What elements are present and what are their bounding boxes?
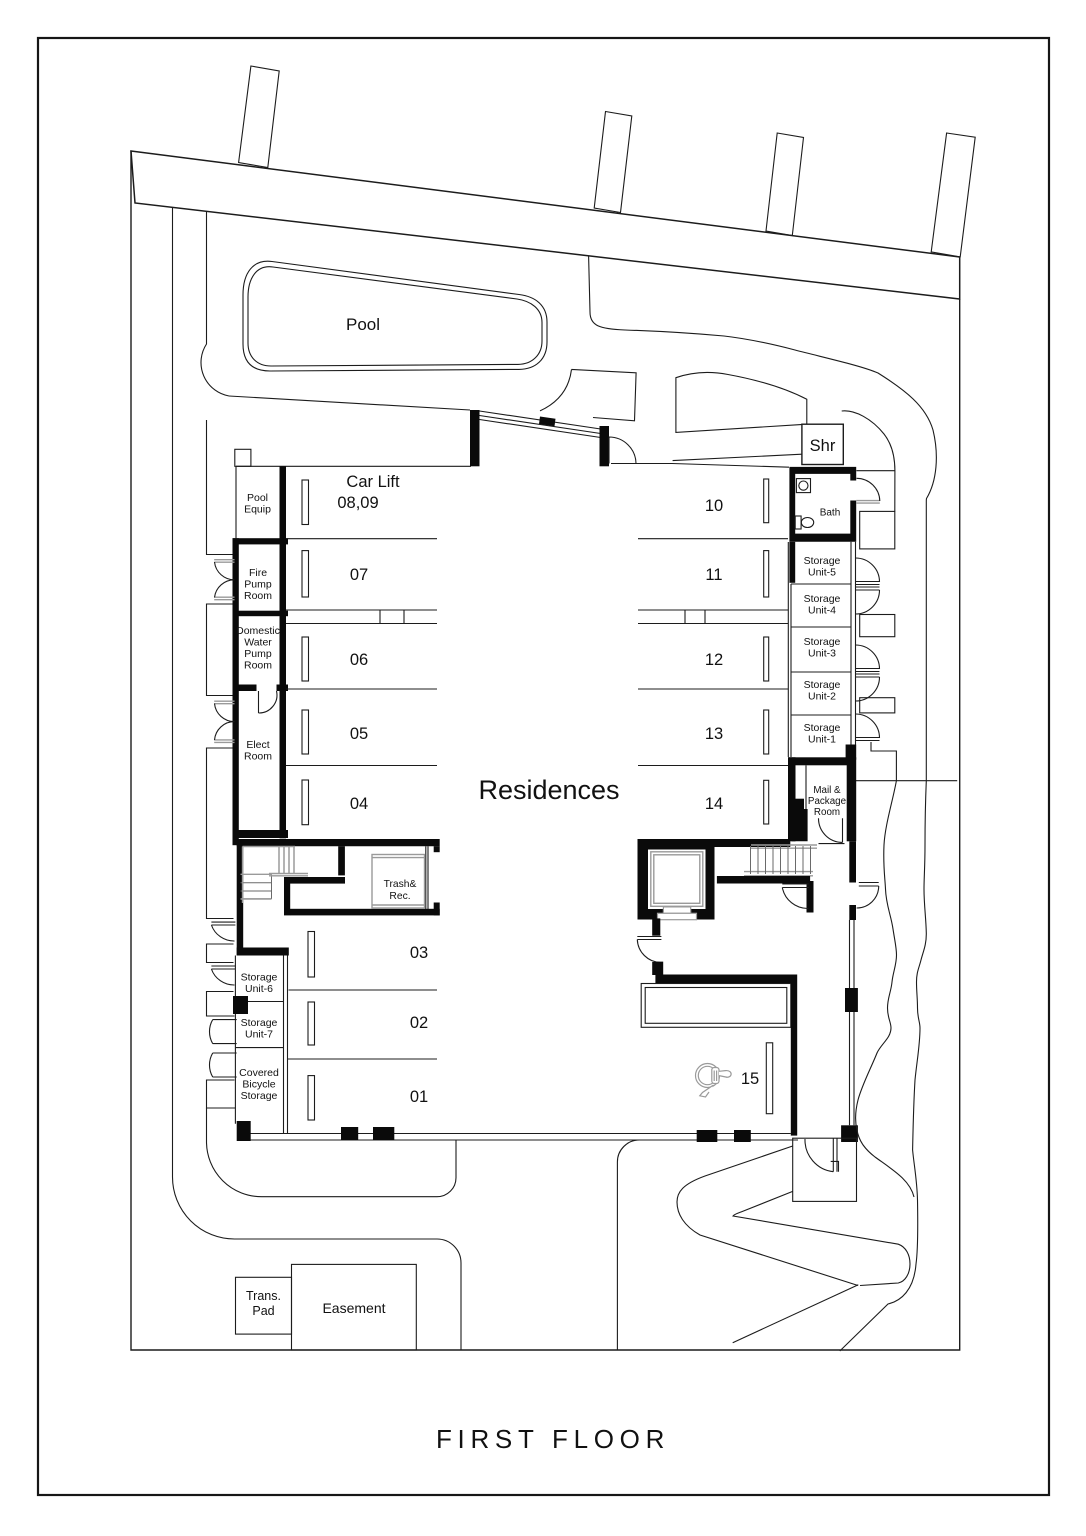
svg-text:13: 13 <box>705 725 723 743</box>
svg-text:Storage: Storage <box>804 555 841 567</box>
svg-text:Unit-5: Unit-5 <box>808 567 836 579</box>
svg-text:Unit-3: Unit-3 <box>808 648 836 660</box>
svg-text:Room: Room <box>814 807 840 818</box>
svg-text:Unit-4: Unit-4 <box>808 605 836 617</box>
svg-text:10: 10 <box>705 497 723 515</box>
svg-text:FIRST FLOOR: FIRST FLOOR <box>436 1424 670 1454</box>
svg-text:Room: Room <box>244 590 272 602</box>
svg-text:Room: Room <box>244 751 272 763</box>
svg-text:Pad: Pad <box>252 1304 274 1318</box>
svg-text:Storage: Storage <box>804 679 841 691</box>
svg-text:06: 06 <box>350 651 368 669</box>
svg-text:Bath: Bath <box>820 508 841 519</box>
svg-text:Unit-1: Unit-1 <box>808 734 836 746</box>
svg-text:Unit-7: Unit-7 <box>245 1029 273 1041</box>
svg-text:Easement: Easement <box>322 1300 385 1316</box>
svg-text:Unit-6: Unit-6 <box>245 983 273 995</box>
svg-text:Storage: Storage <box>241 972 278 984</box>
svg-text:Car Lift: Car Lift <box>346 473 400 491</box>
svg-text:14: 14 <box>705 795 723 813</box>
svg-text:Fire: Fire <box>249 567 267 579</box>
svg-text:Trash&: Trash& <box>384 879 417 890</box>
svg-text:Residences: Residences <box>478 775 619 805</box>
svg-text:12: 12 <box>705 651 723 669</box>
svg-text:Rec.: Rec. <box>389 891 410 902</box>
svg-text:Pool: Pool <box>247 492 268 504</box>
svg-text:15: 15 <box>741 1070 759 1088</box>
svg-text:Unit-2: Unit-2 <box>808 691 836 703</box>
svg-text:Storage: Storage <box>804 722 841 734</box>
svg-text:11: 11 <box>705 566 722 584</box>
svg-text:Covered: Covered <box>239 1067 279 1079</box>
svg-text:Package: Package <box>808 796 847 807</box>
svg-text:Domestic: Domestic <box>236 625 280 637</box>
svg-text:08,09: 08,09 <box>337 494 378 512</box>
svg-text:Pump: Pump <box>244 648 272 660</box>
svg-text:Water: Water <box>244 637 272 649</box>
svg-text:Mail &: Mail & <box>813 785 841 796</box>
svg-text:03: 03 <box>410 944 428 962</box>
svg-text:Storage: Storage <box>804 636 841 648</box>
svg-text:02: 02 <box>410 1014 428 1032</box>
svg-text:01: 01 <box>410 1088 428 1106</box>
svg-text:Storage: Storage <box>804 593 841 605</box>
svg-text:Bicycle: Bicycle <box>242 1079 275 1091</box>
svg-text:Storage: Storage <box>241 1090 278 1102</box>
svg-text:Shr: Shr <box>810 437 836 455</box>
svg-text:Pump: Pump <box>244 579 272 591</box>
svg-text:Trans.: Trans. <box>246 1289 281 1303</box>
svg-text:04: 04 <box>350 795 368 813</box>
svg-text:Storage: Storage <box>241 1017 278 1029</box>
svg-text:Equip: Equip <box>244 504 271 516</box>
svg-text:07: 07 <box>350 566 368 584</box>
svg-text:Elect: Elect <box>246 739 269 751</box>
svg-text:Pool: Pool <box>346 315 380 334</box>
svg-text:05: 05 <box>350 725 368 743</box>
svg-text:Room: Room <box>244 660 272 672</box>
